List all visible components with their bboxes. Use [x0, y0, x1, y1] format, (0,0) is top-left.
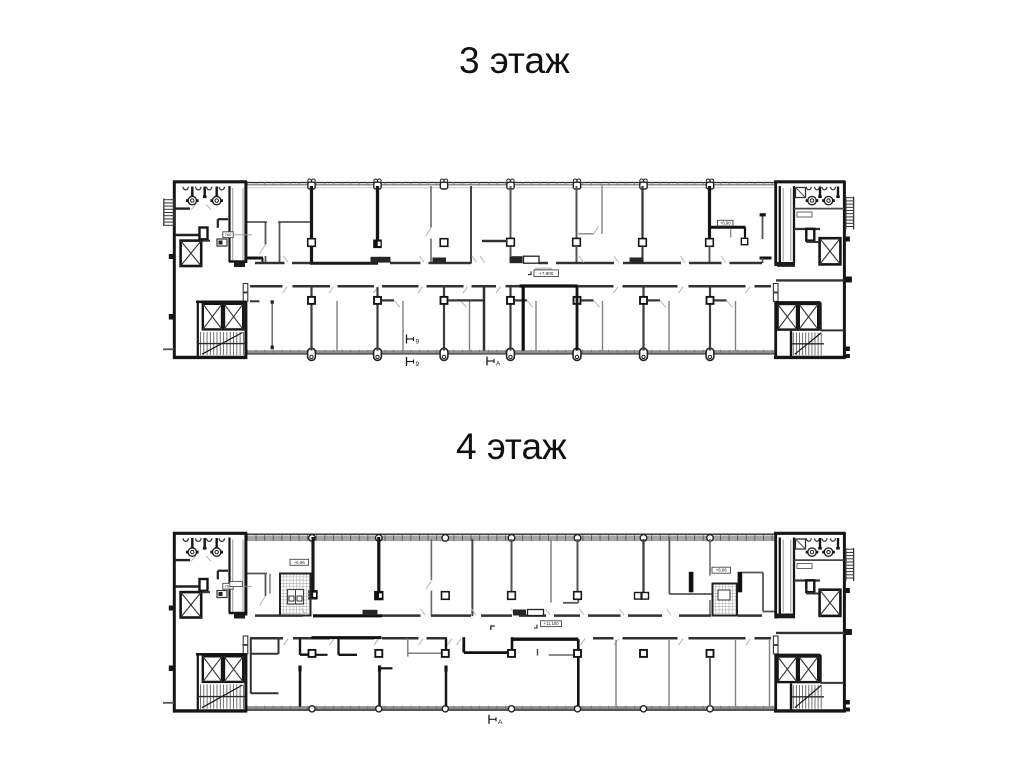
svg-text:А: А: [498, 719, 503, 726]
svg-text:+7.800: +7.800: [539, 271, 554, 276]
svg-text:+6.90: +6.90: [720, 220, 731, 225]
svg-text:+11.100: +11.100: [544, 621, 560, 626]
svg-text:9: 9: [416, 361, 420, 368]
svg-text:9: 9: [416, 339, 420, 346]
svg-text:760: 760: [225, 232, 232, 237]
svg-text:+6.96: +6.96: [716, 568, 728, 573]
svg-text:А: А: [496, 361, 501, 368]
svg-text:+6.96: +6.96: [294, 560, 306, 565]
